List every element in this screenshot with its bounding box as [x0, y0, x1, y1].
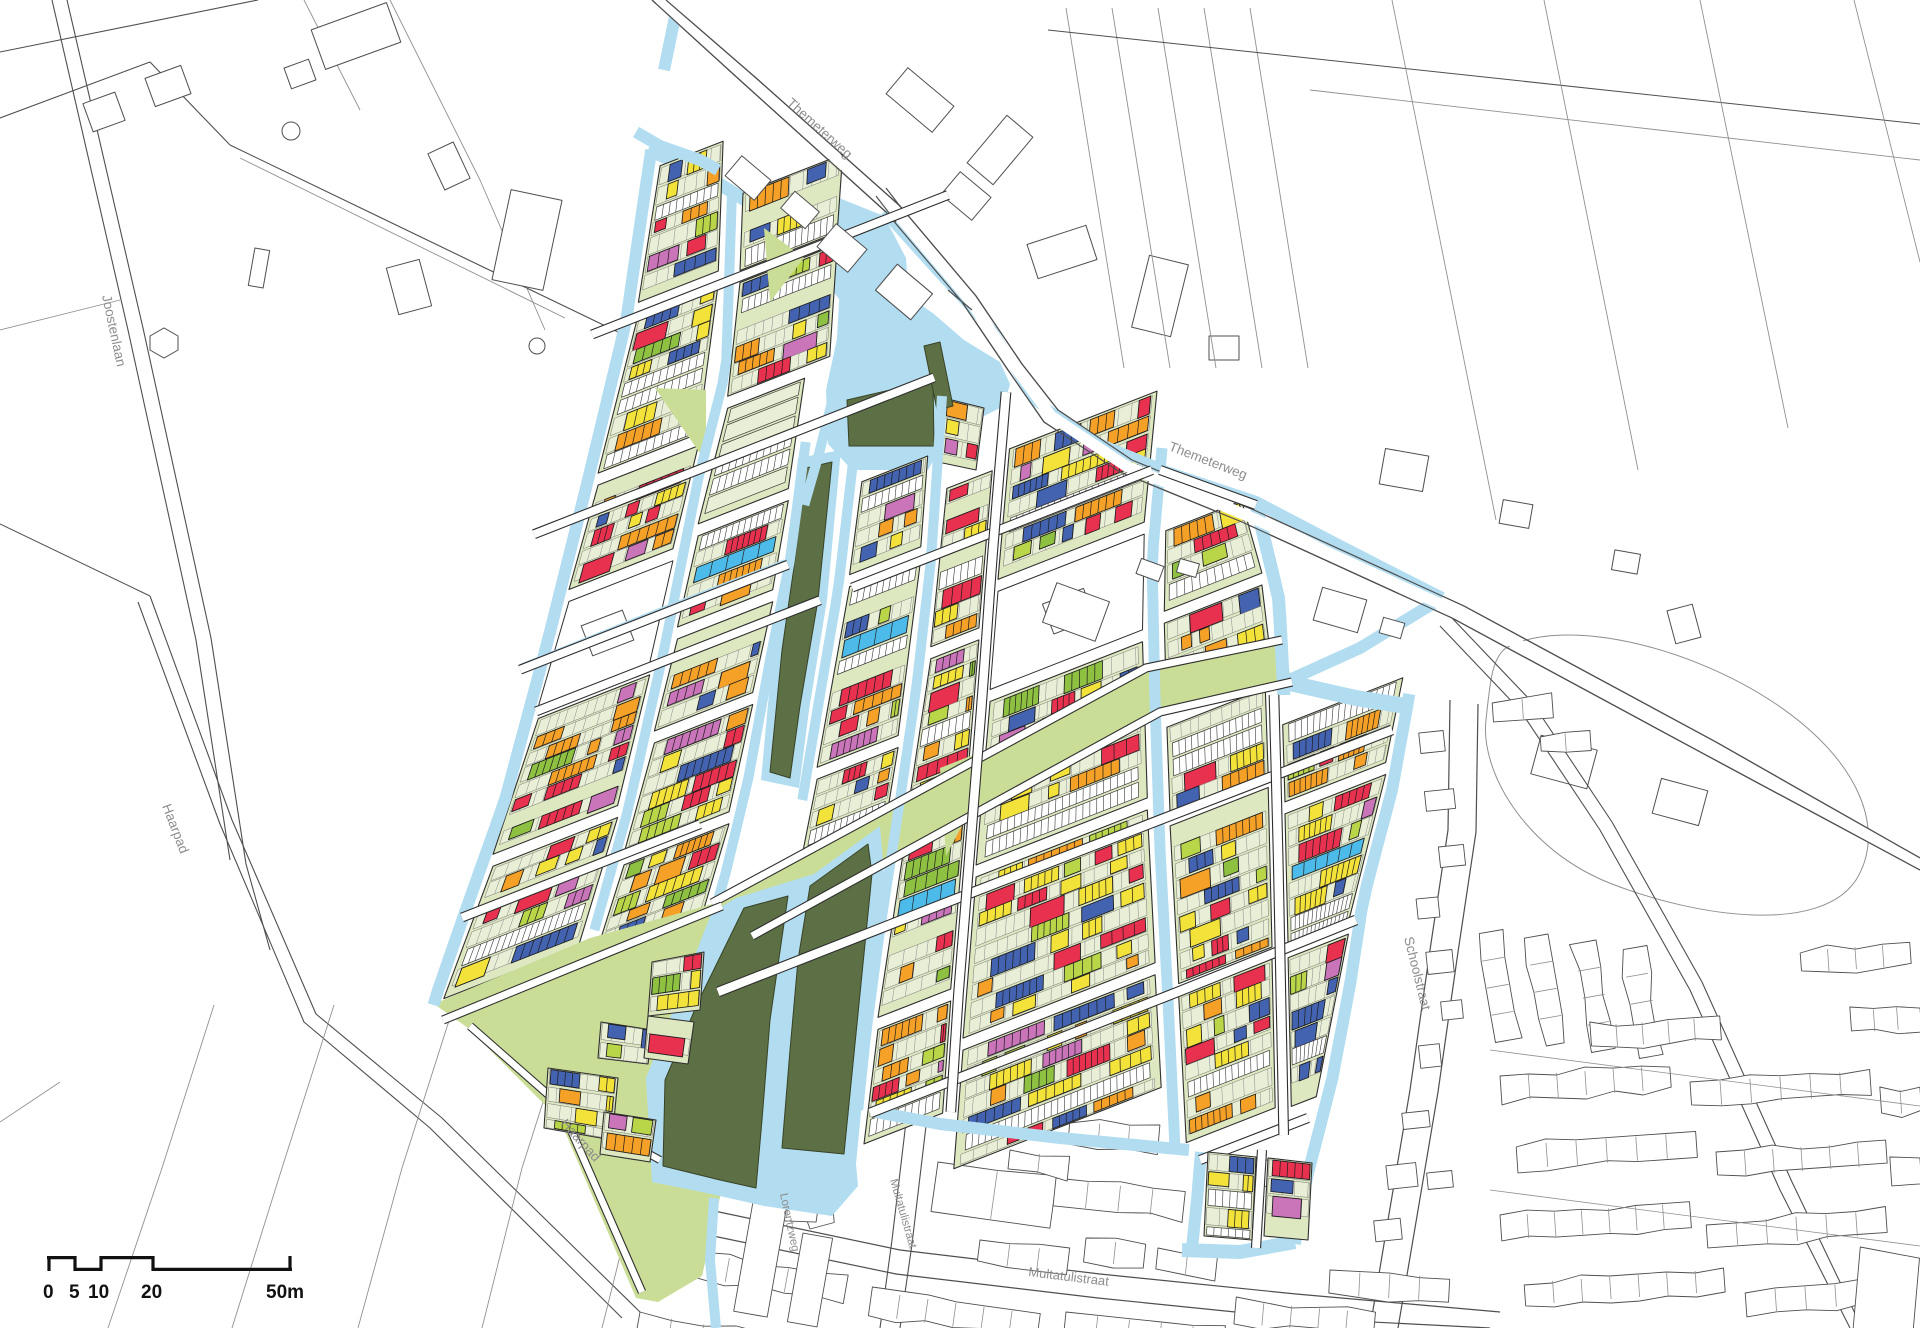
svg-text:5: 5	[69, 1282, 80, 1303]
svg-text:10: 10	[88, 1282, 109, 1303]
svg-text:50m: 50m	[266, 1282, 304, 1303]
svg-text:20: 20	[141, 1282, 162, 1303]
svg-text:0: 0	[43, 1282, 54, 1303]
